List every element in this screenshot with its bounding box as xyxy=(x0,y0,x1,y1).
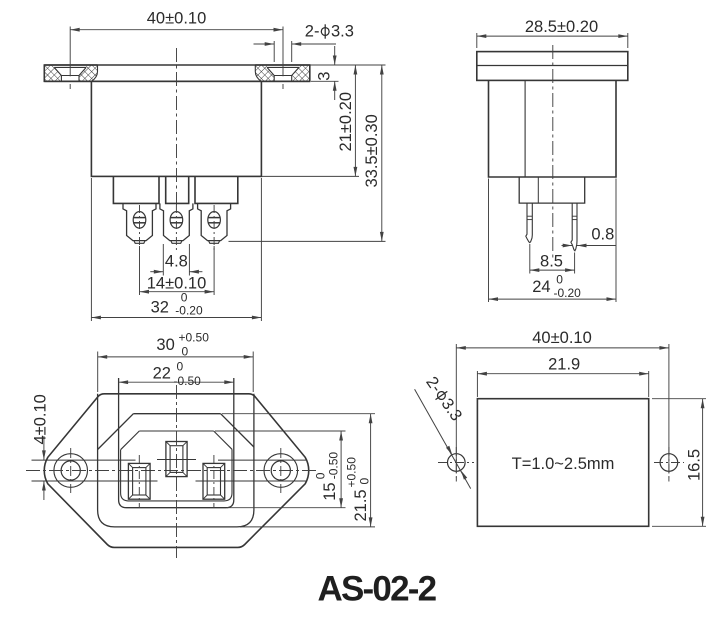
svg-text:40±0.10: 40±0.10 xyxy=(532,329,592,347)
svg-text:-0.20: -0.20 xyxy=(175,304,203,318)
svg-text:2-: 2- xyxy=(305,23,320,41)
svg-text:0: 0 xyxy=(314,472,328,479)
svg-text:21±0.20: 21±0.20 xyxy=(337,92,355,152)
svg-text:0: 0 xyxy=(181,290,188,304)
svg-text:14±0.10: 14±0.10 xyxy=(147,275,207,293)
svg-text:40±0.10: 40±0.10 xyxy=(147,10,207,28)
svg-text:0.8: 0.8 xyxy=(591,225,614,243)
svg-text:-0.20: -0.20 xyxy=(554,286,582,300)
svg-text:0: 0 xyxy=(177,360,184,374)
svg-text:15: 15 xyxy=(321,482,339,500)
svg-text:8.5: 8.5 xyxy=(540,252,563,270)
svg-text:4.8: 4.8 xyxy=(165,252,188,270)
svg-text:32: 32 xyxy=(151,298,169,316)
svg-text:AS-02-2: AS-02-2 xyxy=(318,570,437,609)
svg-text:21.5: 21.5 xyxy=(352,489,370,521)
svg-text:T=1.0~2.5mm: T=1.0~2.5mm xyxy=(512,455,615,473)
svg-text:24: 24 xyxy=(532,278,550,296)
svg-text:0: 0 xyxy=(358,478,372,485)
svg-text:0: 0 xyxy=(556,273,563,287)
svg-text:16.5: 16.5 xyxy=(686,449,704,481)
svg-text:0: 0 xyxy=(182,344,189,358)
svg-text:3: 3 xyxy=(316,72,334,81)
svg-text:3.3: 3.3 xyxy=(331,23,354,41)
svg-text:22: 22 xyxy=(153,364,171,382)
svg-text:30: 30 xyxy=(156,336,174,354)
svg-text:28.5±0.20: 28.5±0.20 xyxy=(525,18,598,36)
svg-text:+0.50: +0.50 xyxy=(345,457,359,488)
svg-text:4±0.10: 4±0.10 xyxy=(32,394,50,444)
svg-text:33.5±0.30: 33.5±0.30 xyxy=(363,114,381,187)
svg-text:+0.50: +0.50 xyxy=(179,331,210,345)
svg-text:-0.50: -0.50 xyxy=(327,452,341,480)
svg-text:21.9: 21.9 xyxy=(548,355,580,373)
svg-text:-0.50: -0.50 xyxy=(174,374,202,388)
